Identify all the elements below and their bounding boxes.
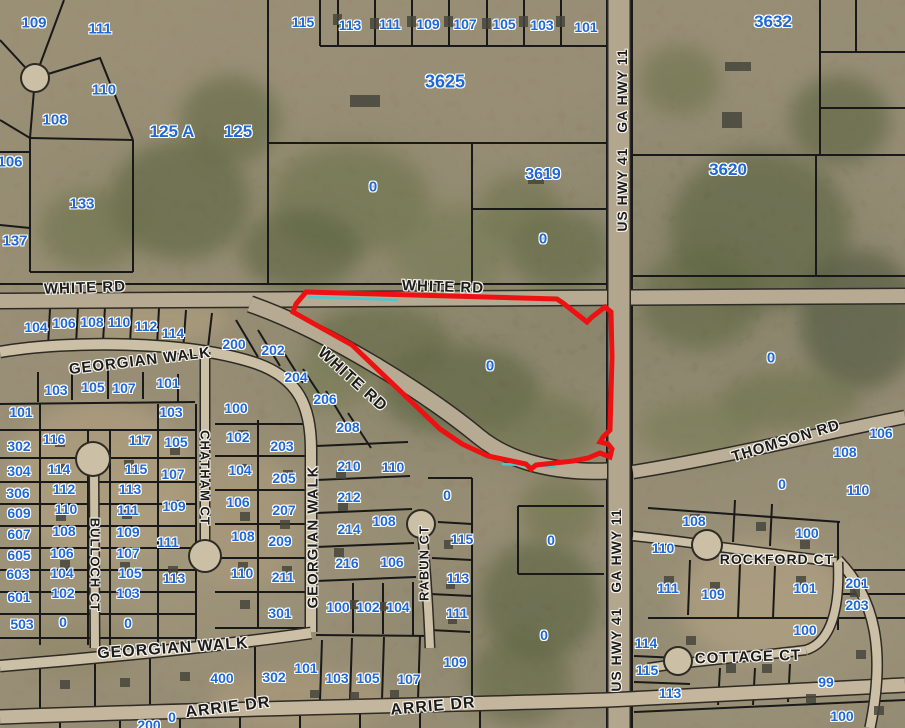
building-footprint <box>444 540 453 549</box>
building-footprint <box>338 502 348 511</box>
building-footprint <box>528 170 544 184</box>
building-footprint <box>380 602 389 611</box>
building-footprint <box>556 16 565 27</box>
culdesac-bulb <box>408 511 434 537</box>
building-footprint <box>120 678 130 687</box>
building-footprint <box>686 636 696 645</box>
building-footprint <box>756 522 766 531</box>
tree-patch <box>720 370 860 430</box>
parcel-boundary-line <box>316 635 432 636</box>
building-footprint <box>170 446 180 455</box>
building-footprint <box>350 600 359 609</box>
building-footprint <box>444 16 453 27</box>
building-footprint <box>690 514 700 523</box>
building-footprint <box>122 510 132 519</box>
building-footprint <box>280 520 290 529</box>
building-footprint <box>120 562 130 571</box>
tree-patch <box>40 190 140 270</box>
building-footprint <box>242 464 252 473</box>
building-footprint <box>334 548 344 557</box>
building-footprint <box>58 464 68 473</box>
culdesac-bulb <box>190 541 220 571</box>
building-footprint <box>710 582 720 591</box>
building-footprint <box>238 430 248 439</box>
building-footprint <box>796 576 806 585</box>
building-footprint <box>722 112 742 128</box>
building-footprint <box>726 664 736 673</box>
culdesac-bulb <box>693 531 721 559</box>
building-footprint <box>310 690 319 698</box>
building-footprint <box>350 692 359 700</box>
building-footprint <box>238 562 248 571</box>
building-footprint <box>62 590 72 599</box>
culdesac-bulb <box>77 443 109 475</box>
tree-patch <box>10 400 190 560</box>
building-footprint <box>172 500 182 509</box>
building-footprint <box>333 14 342 25</box>
tree-patch <box>790 75 890 165</box>
building-footprint <box>168 566 178 575</box>
building-footprint <box>446 580 455 589</box>
building-footprint <box>240 512 250 521</box>
building-footprint <box>800 540 810 549</box>
building-footprint <box>180 672 190 681</box>
building-footprint <box>850 588 860 597</box>
building-footprint <box>60 560 70 569</box>
building-footprint <box>856 650 866 659</box>
building-footprint <box>56 512 66 521</box>
building-footprint <box>407 16 416 27</box>
building-footprint <box>336 470 346 479</box>
building-footprint <box>55 438 65 447</box>
tree-patch <box>640 45 720 115</box>
building-footprint <box>350 95 380 107</box>
building-footprint <box>664 576 674 585</box>
building-footprint <box>806 694 816 703</box>
building-footprint <box>240 600 250 609</box>
bulloch-ct <box>94 472 95 648</box>
building-footprint <box>283 470 293 479</box>
culdesac-bulb <box>665 648 691 674</box>
building-footprint <box>60 680 70 689</box>
tree-patch <box>520 475 600 545</box>
building-footprint <box>390 690 399 698</box>
building-footprint <box>725 62 751 71</box>
tree-patch <box>470 635 570 725</box>
building-footprint <box>282 566 292 575</box>
building-footprint <box>874 706 884 715</box>
building-footprint <box>370 18 379 29</box>
aerial-parcel-map[interactable]: 109111110108106133137125 A12511511311110… <box>0 0 905 728</box>
building-footprint <box>519 16 528 27</box>
culdesac-bulb <box>22 65 48 91</box>
building-footprint <box>762 664 772 673</box>
building-footprint <box>124 460 134 469</box>
building-footprint <box>448 615 457 624</box>
building-footprint <box>482 18 491 29</box>
tree-patch <box>240 210 360 290</box>
building-footprint <box>124 590 134 599</box>
map-layers-svg <box>0 0 905 728</box>
tree-patch <box>180 75 280 165</box>
